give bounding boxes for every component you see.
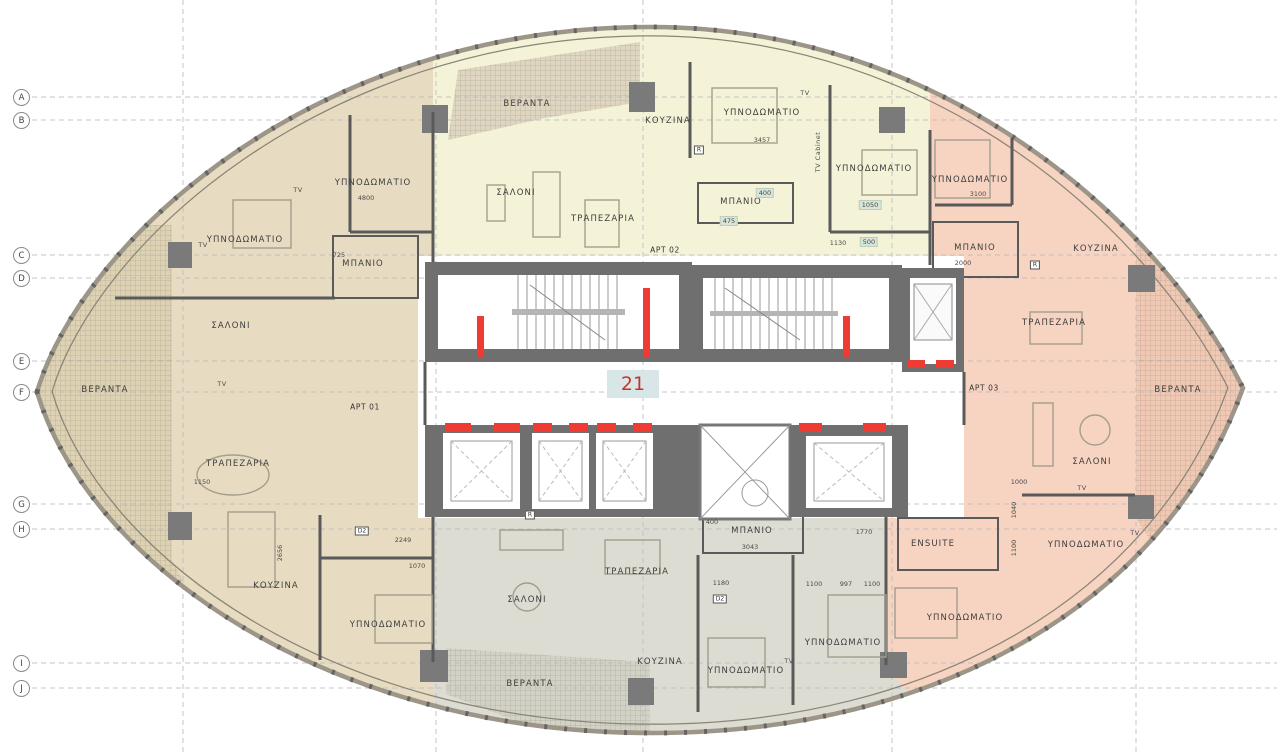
apartment-fills bbox=[30, 20, 1266, 742]
veranda-right bbox=[1136, 238, 1266, 540]
floor-plan-page: 21 ΥΠΝΟΔΩΜΑΤΙΟΥΠΝΟΔΩΜΑΤΙΟΜΠΑΝΙΟΣΑΛΟΝΙΒΕΡ… bbox=[0, 0, 1277, 756]
floor-plan-drawing bbox=[0, 0, 1277, 756]
